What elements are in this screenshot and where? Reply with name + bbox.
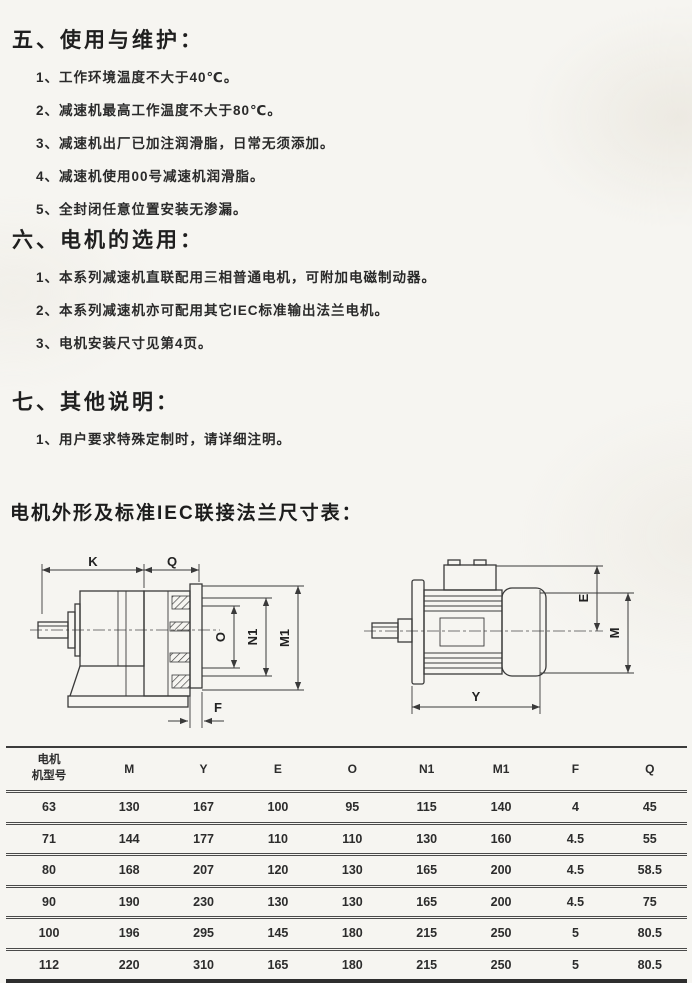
table-cell: 145 — [241, 918, 315, 950]
column-header: 电机 机型号 — [6, 747, 92, 792]
table-cell: 165 — [241, 949, 315, 981]
table-cell: 165 — [390, 886, 464, 918]
table-cell: 250 — [464, 918, 538, 950]
table-cell: 130 — [92, 792, 166, 824]
section-motor-selection: 六、电机的选用： 1、本系列减速机直联配用三相普通电机，可附加电磁制动器。2、本… — [12, 224, 436, 365]
table-cell: 200 — [464, 886, 538, 918]
dimension-table-heading: 电机外形及标准IEC联接法兰尺寸表： — [10, 498, 363, 525]
section-other-notes: 七、其他说明： 1、用户要求特殊定制时，请详细注明。 — [12, 386, 291, 461]
table-cell: 4.5 — [538, 855, 612, 887]
table-cell: 4 — [538, 792, 612, 824]
column-header: F — [538, 747, 612, 792]
list-item: 1、本系列减速机直联配用三相普通电机，可附加电磁制动器。 — [36, 266, 436, 299]
column-header: E — [241, 747, 315, 792]
motor-frame — [424, 590, 502, 674]
column-header: M — [92, 747, 166, 792]
table-cell: 5 — [538, 918, 612, 950]
table-cell: 110 — [241, 823, 315, 855]
table-cell: 207 — [166, 855, 240, 887]
column-header: Q — [613, 747, 687, 792]
dim-label-n1: N1 — [245, 629, 260, 646]
terminal-box — [444, 565, 496, 590]
foot-plate — [68, 696, 188, 707]
table-cell: 55 — [613, 823, 687, 855]
table-row: 711441771101101301604.555 — [6, 823, 687, 855]
table-cell: 215 — [390, 949, 464, 981]
table-header-row: 电机 机型号MYEON1M1FQ — [6, 747, 687, 792]
table-cell: 100 — [6, 918, 92, 950]
table-cell: 5 — [538, 949, 612, 981]
dim-label-e: E — [576, 593, 591, 602]
section-title: 六、电机的选用： — [12, 224, 436, 254]
table-cell: 110 — [315, 823, 389, 855]
dim-label-y: Y — [472, 689, 481, 704]
table-cell: 58.5 — [613, 855, 687, 887]
table-cell: 4.5 — [538, 823, 612, 855]
table-head: 电机 机型号MYEON1M1FQ — [6, 747, 687, 792]
list-item: 1、用户要求特殊定制时，请详细注明。 — [36, 428, 291, 461]
motor-shaft — [372, 623, 398, 638]
dim-label-k: K — [88, 556, 98, 569]
table-body: 6313016710095115140445711441771101101301… — [6, 792, 687, 982]
output-flange — [190, 584, 202, 688]
table-cell: 168 — [92, 855, 166, 887]
nameplate — [440, 618, 484, 646]
section-usage-maintenance: 五、使用与维护： 1、工作环境温度不大于40℃。2、减速机最高工作温度不大于80… — [12, 24, 335, 231]
table-cell: 63 — [6, 792, 92, 824]
dim-label-q: Q — [167, 556, 177, 569]
table-cell: 310 — [166, 949, 240, 981]
table-row: 112220310165180215250580.5 — [6, 949, 687, 981]
table-cell: 165 — [390, 855, 464, 887]
table-cell: 250 — [464, 949, 538, 981]
table-cell: 75 — [613, 886, 687, 918]
table-cell: 90 — [6, 886, 92, 918]
dim-label-f: F — [214, 700, 222, 715]
section-title: 七、其他说明： — [12, 386, 291, 416]
table-cell: 115 — [390, 792, 464, 824]
table-cell: 180 — [315, 949, 389, 981]
column-header: N1 — [390, 747, 464, 792]
table-cell: 167 — [166, 792, 240, 824]
foot-support — [70, 666, 80, 696]
table-cell: 112 — [6, 949, 92, 981]
table-cell: 230 — [166, 886, 240, 918]
scanned-manual-page: { "colors": {"paper": "#f6f5f1", "ink": … — [0, 0, 692, 975]
table-cell: 200 — [464, 855, 538, 887]
section-item-list: 1、用户要求特殊定制时，请详细注明。 — [12, 428, 291, 461]
table-cell: 4.5 — [538, 886, 612, 918]
table-cell: 130 — [241, 886, 315, 918]
table-cell: 196 — [92, 918, 166, 950]
table-cell: 45 — [613, 792, 687, 824]
list-item: 1、工作环境温度不大于40℃。 — [36, 66, 335, 99]
table-cell: 100 — [241, 792, 315, 824]
table-cell: 130 — [315, 855, 389, 887]
table-cell: 215 — [390, 918, 464, 950]
motor-endbell — [502, 588, 546, 676]
gear-reducer-dimension-drawing: K Q O N1 M1 F — [22, 556, 344, 752]
table-cell: 130 — [390, 823, 464, 855]
section-item-list: 1、本系列减速机直联配用三相普通电机，可附加电磁制动器。2、本系列减速机亦可配用… — [12, 266, 436, 365]
dim-label-m: M — [607, 628, 622, 639]
table-cell: 80 — [6, 855, 92, 887]
list-item: 2、本系列减速机亦可配用其它IEC标准输出法兰电机。 — [36, 299, 436, 332]
table-cell: 190 — [92, 886, 166, 918]
table-cell: 140 — [464, 792, 538, 824]
dim-label-m1: M1 — [277, 629, 292, 647]
column-header: M1 — [464, 747, 538, 792]
table-cell: 220 — [92, 949, 166, 981]
table-cell: 80.5 — [613, 918, 687, 950]
list-item: 3、减速机出厂已加注润滑脂，日常无须添加。 — [36, 132, 335, 165]
table-cell: 160 — [464, 823, 538, 855]
list-item: 3、电机安装尺寸见第4页。 — [36, 332, 436, 365]
motor-dimension-drawing: E M Y — [360, 556, 660, 752]
dimension-table: 电机 机型号MYEON1M1FQ 63130167100951151404457… — [6, 746, 687, 983]
table-cell: 295 — [166, 918, 240, 950]
table-cell: 180 — [315, 918, 389, 950]
dim-label-o: O — [213, 632, 228, 642]
table-row: 100196295145180215250580.5 — [6, 918, 687, 950]
gearcase — [80, 591, 144, 666]
section-title: 五、使用与维护： — [12, 24, 335, 54]
list-item: 4、减速机使用00号减速机润滑脂。 — [36, 165, 335, 198]
table-cell: 120 — [241, 855, 315, 887]
table-cell: 71 — [6, 823, 92, 855]
table-row: 901902301301301652004.575 — [6, 886, 687, 918]
table-cell: 80.5 — [613, 949, 687, 981]
dimension-table-wrap: 电机 机型号MYEON1M1FQ 63130167100951151404457… — [6, 746, 687, 983]
table-cell: 95 — [315, 792, 389, 824]
table-row: 6313016710095115140445 — [6, 792, 687, 824]
column-header: O — [315, 747, 389, 792]
column-header: Y — [166, 747, 240, 792]
table-cell: 177 — [166, 823, 240, 855]
section-item-list: 1、工作环境温度不大于40℃。2、减速机最高工作温度不大于80℃。3、减速机出厂… — [12, 66, 335, 231]
table-cell: 144 — [92, 823, 166, 855]
list-item: 2、减速机最高工作温度不大于80℃。 — [36, 99, 335, 132]
mounting-flange — [412, 580, 424, 684]
table-cell: 130 — [315, 886, 389, 918]
table-row: 801682071201301652004.558.5 — [6, 855, 687, 887]
